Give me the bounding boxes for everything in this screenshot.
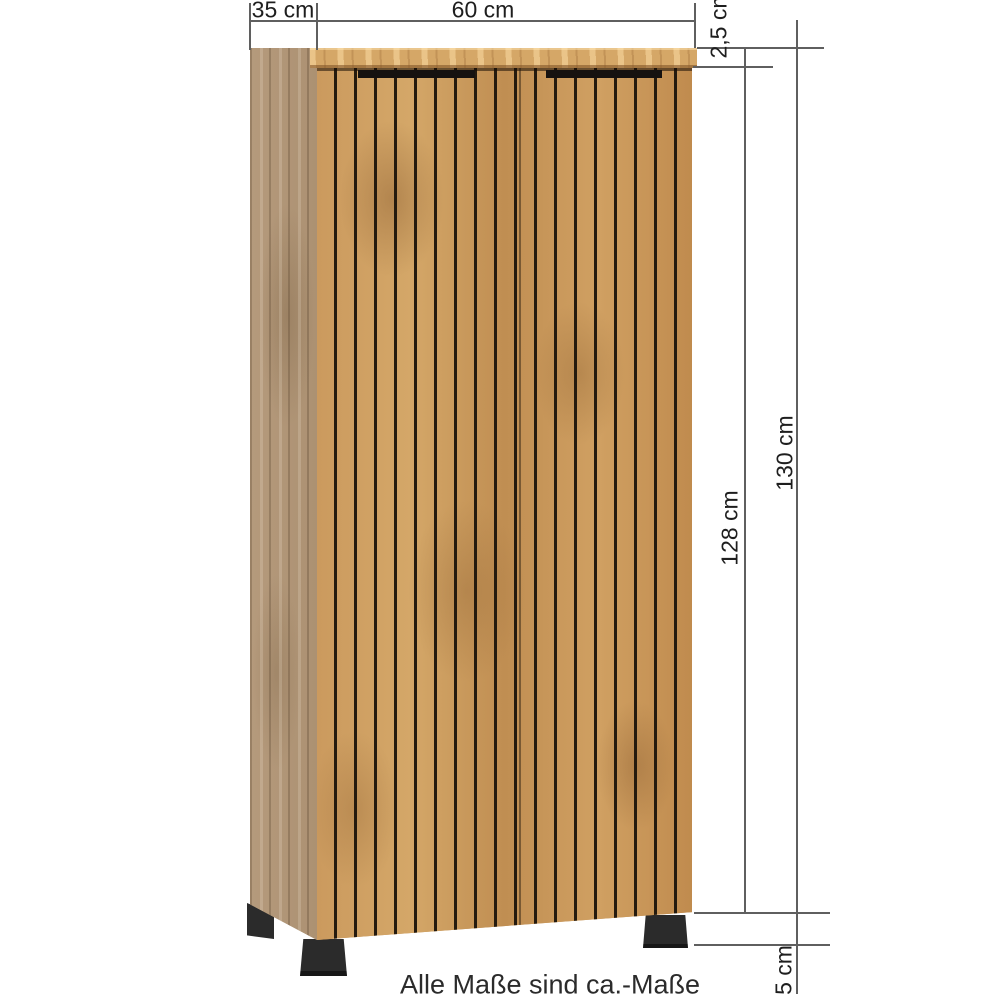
cabinet-foot-front-left <box>300 939 347 976</box>
left-door-handle <box>358 70 475 78</box>
dimension-line-body-bottom <box>694 912 830 914</box>
product-dimension-diagram: 35 cm 60 cm 2,5 cm 128 cm 130 cm 5 cm Al… <box>0 0 1000 1000</box>
dimension-label-top-thickness: 2,5 cm <box>708 0 731 59</box>
cabinet-foot-right <box>643 915 688 948</box>
cabinet-side-panel <box>250 48 317 940</box>
dimension-line-under-top-board <box>693 66 773 68</box>
right-door-handle <box>546 70 662 78</box>
measurements-footnote: Alle Maße sind ca.-Maße <box>400 970 700 1000</box>
cabinet-top-board <box>310 48 697 68</box>
dimension-label-body-height: 128 cm <box>719 490 742 565</box>
dimension-label-total-height: 130 cm <box>774 415 797 490</box>
dimension-label-feet-height: 5 cm <box>773 945 796 995</box>
door-seam <box>519 68 521 940</box>
dimension-tick-front-left <box>316 3 318 50</box>
dimension-label-width: 60 cm <box>452 0 515 22</box>
dimension-line-body-height <box>744 49 746 913</box>
dimension-line-floor <box>694 944 830 946</box>
dimension-tick-front-right <box>694 3 696 48</box>
cabinet-slatted-doors <box>317 68 692 940</box>
dimension-label-depth: 35 cm <box>252 0 315 22</box>
